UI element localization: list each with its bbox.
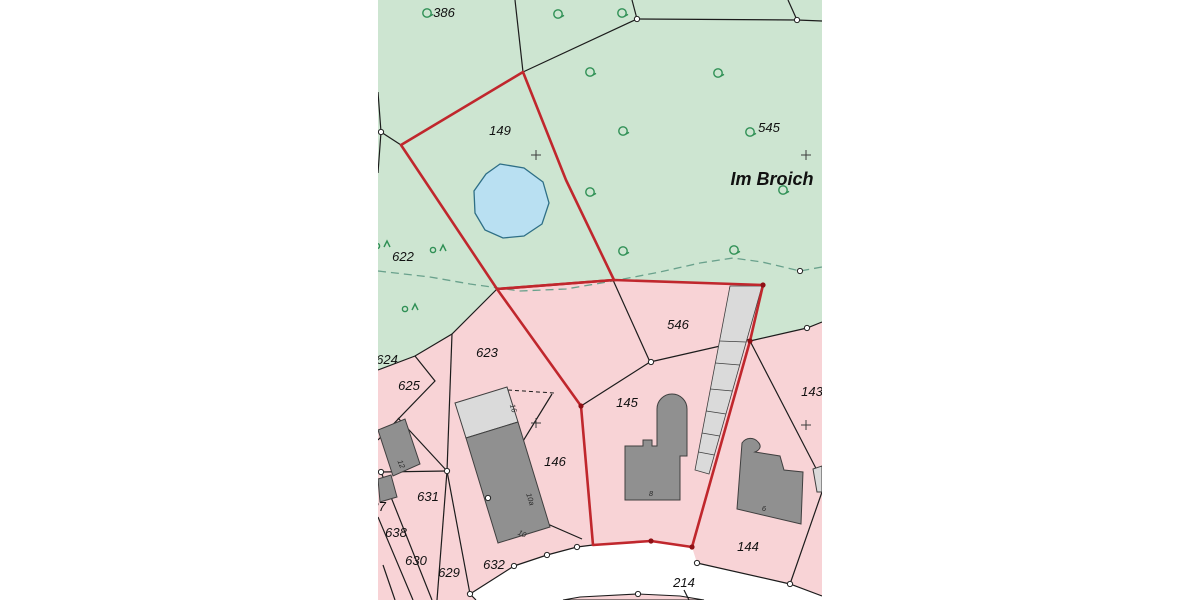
red-boundary-point [747,338,752,343]
parcel-number-label: 629 [438,565,460,580]
parcel-number-label: 632 [483,557,505,572]
boundary-point [804,325,809,330]
parcel-number-label: 386 [433,5,455,20]
red-boundary-point [648,538,653,543]
boundary-point [544,552,549,557]
parcel-number-label: 623 [476,345,498,360]
parcel-number-label: 146 [544,454,566,469]
boundary-point [444,468,449,473]
parcel-number-label: 143 [801,384,822,399]
boundary-point [648,359,653,364]
parcel-number-label: 624 [378,352,398,367]
red-boundary-point [578,403,583,408]
boundary-point [794,17,799,22]
parcel-number-label: 630 [405,553,427,568]
boundary-point [797,268,802,273]
parcel-number-label: 144 [737,539,759,554]
parcel-number-label: 214 [672,575,695,590]
parcel-number-label: 149 [489,123,511,138]
parcel-number-label: 145 [616,395,638,410]
parcel-number-label: 637 [378,499,387,514]
place-name-label: Im Broich [730,169,813,189]
boundary-point [467,591,472,596]
parcel-number-label: 631 [417,489,439,504]
boundary-point [787,581,792,586]
boundary-point [574,544,579,549]
cadastral-map: 3865451496226236246255461451461436316376… [378,0,822,600]
cadastral-map-page: 3865451496226236246255461451461436316376… [0,0,1200,600]
boundary-point [694,560,699,565]
boundary-point [485,495,490,500]
boundary-point [378,469,383,474]
red-boundary-point [689,544,694,549]
boundary-point [635,591,640,596]
parcel-number-label: 622 [392,249,414,264]
boundary-point [378,129,383,134]
parcel-number-label: 625 [398,378,420,393]
parcel-number-label: 546 [667,317,689,332]
red-boundary-point [760,282,765,287]
boundary-point [511,563,516,568]
boundary-point [634,16,639,21]
parcel-number-label: 545 [758,120,780,135]
parcel-number-label: 638 [385,525,407,540]
